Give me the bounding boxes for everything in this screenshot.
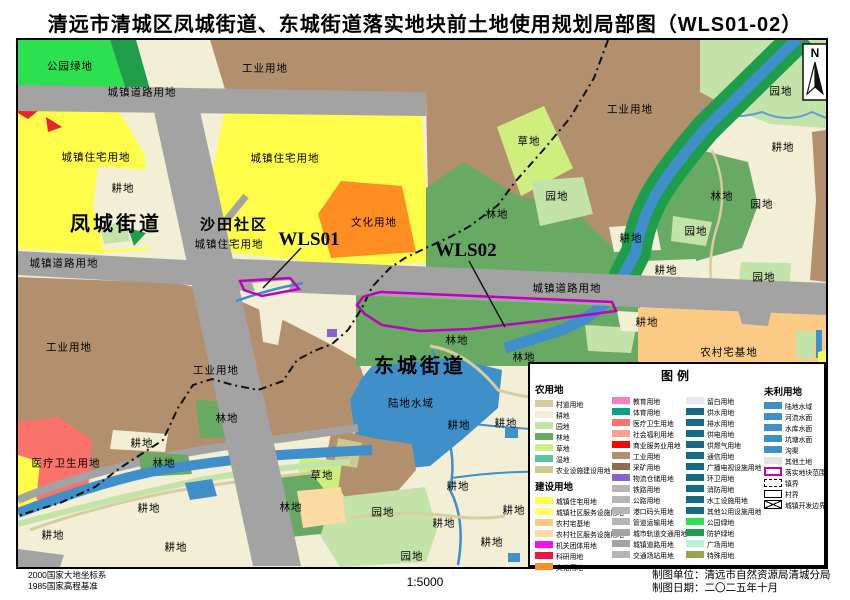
legend-item-label: 工业用地 bbox=[633, 451, 660, 461]
legend-swatch bbox=[612, 540, 630, 547]
legend-item: 村界 bbox=[764, 488, 826, 499]
legend-item-label: 广播电视设施用地 bbox=[707, 462, 761, 472]
legend-item: 物流仓储用地 bbox=[612, 472, 687, 483]
legend-swatch bbox=[686, 485, 704, 492]
legend-item-label: 供水用地 bbox=[707, 407, 734, 417]
legend-item-label: 水工设施用地 bbox=[707, 495, 748, 505]
legend-swatch bbox=[612, 518, 630, 525]
legend-item-label: 湿地 bbox=[556, 454, 570, 464]
legend-item: 城镇开发边界 bbox=[764, 499, 826, 510]
legend-item-label: 供电用地 bbox=[707, 429, 734, 439]
legend-item-label: 管道运输用地 bbox=[633, 517, 674, 527]
legend-item: 其他公用设施用地 bbox=[686, 505, 761, 516]
legend-swatch bbox=[764, 467, 782, 476]
legend-swatch bbox=[686, 474, 704, 481]
legend-item-label: 排水用地 bbox=[707, 418, 734, 428]
legend-item: 湿地 bbox=[535, 453, 624, 464]
legend-swatch bbox=[686, 463, 704, 470]
legend-item-label: 科研用地 bbox=[556, 551, 583, 561]
legend-item: 农业设施建设用地 bbox=[535, 464, 624, 475]
page-title: 清远市清城区凤城街道、东城街道落实地块前土地使用规划局部图（WLS01-02） bbox=[0, 8, 850, 37]
legend-item-label: 草地 bbox=[556, 443, 570, 453]
legend-item-label: 采矿用地 bbox=[633, 462, 660, 472]
legend-item-label: 通信用地 bbox=[707, 451, 734, 461]
legend-item-label: 村界 bbox=[785, 489, 799, 499]
legend-swatch bbox=[612, 463, 630, 470]
legend-item-label: 公园绿地 bbox=[707, 517, 734, 527]
legend-swatch bbox=[686, 441, 704, 448]
legend-item-label: 耕地 bbox=[556, 410, 570, 420]
legend-item-label: 广场用地 bbox=[707, 539, 734, 549]
legend-item: 林地 bbox=[535, 431, 624, 442]
legend-item: 文化用地 bbox=[535, 561, 624, 572]
legend-item: 工业用地 bbox=[612, 450, 687, 461]
legend-column-3: 留白用地 供水用地 排水用地 供电用地 bbox=[686, 395, 761, 560]
credit-line-1: 制图单位：清远市自然资源局清城分局 bbox=[652, 569, 831, 582]
legend-item: 草地 bbox=[535, 442, 624, 453]
legend-item-label: 沟渠 bbox=[785, 445, 799, 455]
legend-swatch bbox=[686, 397, 704, 404]
legend-swatch bbox=[612, 452, 630, 459]
legend-swatch bbox=[535, 433, 553, 440]
legend-item: 体育用地 bbox=[612, 406, 687, 417]
legend-item: 排水用地 bbox=[686, 417, 761, 428]
legend-item-label: 公路用地 bbox=[633, 495, 660, 505]
north-arrow-icon bbox=[803, 44, 826, 100]
legend-item: 公园绿地 bbox=[686, 516, 761, 527]
legend-item: 消防用地 bbox=[686, 483, 761, 494]
legend-item: 特殊用地 bbox=[686, 549, 761, 560]
legend-item: 广播电视设施用地 bbox=[686, 461, 761, 472]
legend-item: 城镇道路用地 bbox=[612, 538, 687, 549]
legend-swatch bbox=[764, 500, 782, 509]
legend: 图例 农用地 村道用地 耕地 园地 bbox=[528, 362, 826, 567]
legend-swatch bbox=[535, 466, 553, 473]
legend-swatch bbox=[686, 452, 704, 459]
legend-item-label: 城市轨道交通用地 bbox=[633, 528, 687, 538]
legend-item: 商业服务业用地 bbox=[612, 439, 687, 450]
legend-swatch bbox=[612, 551, 630, 558]
legend-swatch bbox=[535, 444, 553, 451]
legend-item-label: 园地 bbox=[556, 421, 570, 431]
legend-item: 医疗卫生用地 bbox=[612, 417, 687, 428]
legend-swatch bbox=[535, 422, 553, 429]
legend-item: 耕地 bbox=[535, 409, 624, 420]
legend-item: 广场用地 bbox=[686, 538, 761, 549]
legend-item-label: 教育用地 bbox=[633, 396, 660, 406]
legend-item-label: 机关团体用地 bbox=[556, 540, 597, 550]
legend-swatch bbox=[535, 519, 553, 526]
legend-swatch bbox=[612, 408, 630, 415]
legend-item: 供燃气用地 bbox=[686, 439, 761, 450]
legend-item-label: 农业设施建设用地 bbox=[556, 465, 610, 475]
legend-item: 供水用地 bbox=[686, 406, 761, 417]
legend-swatch bbox=[764, 446, 782, 453]
legend-item: 采矿用地 bbox=[612, 461, 687, 472]
legend-item-label: 留白用地 bbox=[707, 396, 734, 406]
legend-item-label: 河流水面 bbox=[785, 412, 812, 422]
legend-item-label: 落实地块范围 bbox=[785, 467, 826, 477]
legend-item-label: 防护绿地 bbox=[707, 528, 734, 538]
legend-swatch bbox=[612, 496, 630, 503]
legend-item: 园地 bbox=[535, 420, 624, 431]
legend-swatch bbox=[764, 424, 782, 431]
legend-item: 机关团体用地 bbox=[535, 539, 624, 550]
legend-item-label: 村道用地 bbox=[556, 399, 583, 409]
legend-swatch bbox=[686, 518, 704, 525]
legend-header-construction: 建设用地 bbox=[535, 479, 624, 493]
legend-swatch bbox=[535, 411, 553, 418]
legend-swatch bbox=[686, 419, 704, 426]
legend-item-label: 陆地水域 bbox=[785, 401, 812, 411]
legend-header-agricultural: 农用地 bbox=[535, 382, 624, 396]
legend-item-label: 镇界 bbox=[785, 478, 799, 488]
credit-line-2: 制图日期：二〇二五年十月 bbox=[652, 582, 831, 595]
legend-swatch bbox=[535, 497, 553, 504]
legend-item: 河流水面 bbox=[764, 411, 826, 422]
legend-item: 留白用地 bbox=[686, 395, 761, 406]
legend-item: 落实地块范围 bbox=[764, 466, 826, 477]
legend-item-label: 城镇住宅用地 bbox=[556, 496, 597, 506]
legend-item: 坑塘水面 bbox=[764, 433, 826, 444]
legend-item-label: 水库水面 bbox=[785, 423, 812, 433]
legend-item-label: 环卫用地 bbox=[707, 473, 734, 483]
legend-item: 农村社区服务设施用地 bbox=[535, 528, 624, 539]
legend-item: 港口码头用地 bbox=[612, 505, 687, 516]
legend-item: 科研用地 bbox=[535, 550, 624, 561]
legend-item: 管道运输用地 bbox=[612, 516, 687, 527]
legend-item: 公路用地 bbox=[612, 494, 687, 505]
legend-item: 水工设施用地 bbox=[686, 494, 761, 505]
legend-item-label: 其他土地 bbox=[785, 456, 812, 466]
legend-swatch bbox=[686, 551, 704, 558]
legend-swatch bbox=[612, 474, 630, 481]
legend-swatch bbox=[612, 529, 630, 536]
legend-swatch bbox=[686, 507, 704, 514]
legend-item: 城镇社区服务设施用地 bbox=[535, 506, 624, 517]
legend-item-label: 特殊用地 bbox=[707, 550, 734, 560]
legend-item: 村道用地 bbox=[535, 398, 624, 409]
legend-column-2: 教育用地 体育用地 医疗卫生用地 社会福利用地 bbox=[612, 395, 687, 560]
legend-item-label: 消防用地 bbox=[707, 484, 734, 494]
legend-item-label: 城镇道路用地 bbox=[633, 539, 674, 549]
legend-swatch bbox=[612, 419, 630, 426]
legend-swatch bbox=[612, 507, 630, 514]
credits: 制图单位：清远市自然资源局清城分局 制图日期：二〇二五年十月 bbox=[652, 569, 831, 595]
legend-swatch bbox=[764, 413, 782, 420]
legend-item-label: 商业服务业用地 bbox=[633, 440, 681, 450]
legend-item-label: 供燃气用地 bbox=[707, 440, 741, 450]
legend-swatch bbox=[686, 540, 704, 547]
legend-item: 陆地水域 bbox=[764, 400, 826, 411]
legend-item: 教育用地 bbox=[612, 395, 687, 406]
legend-item-label: 社会福利用地 bbox=[633, 429, 674, 439]
legend-swatch bbox=[535, 541, 553, 548]
legend-item-label: 物流仓储用地 bbox=[633, 473, 674, 483]
legend-item: 防护绿地 bbox=[686, 527, 761, 538]
legend-swatch bbox=[612, 397, 630, 404]
legend-item-label: 铁路用地 bbox=[633, 484, 660, 494]
legend-item-label: 其他公用设施用地 bbox=[707, 506, 761, 516]
legend-swatch bbox=[535, 563, 553, 570]
legend-item: 水库水面 bbox=[764, 422, 826, 433]
legend-item-label: 林地 bbox=[556, 432, 570, 442]
legend-item: 环卫用地 bbox=[686, 472, 761, 483]
legend-swatch bbox=[535, 530, 553, 537]
legend-item: 镇界 bbox=[764, 477, 826, 488]
legend-swatch bbox=[612, 430, 630, 437]
legend-item-label: 体育用地 bbox=[633, 407, 660, 417]
legend-swatch bbox=[535, 400, 553, 407]
legend-item-label: 农村宅基地 bbox=[556, 518, 590, 528]
legend-item: 通信用地 bbox=[686, 450, 761, 461]
legend-item-label: 港口码头用地 bbox=[633, 506, 674, 516]
legend-swatch bbox=[612, 485, 630, 492]
legend-item: 沟渠 bbox=[764, 444, 826, 455]
legend-swatch bbox=[764, 457, 782, 464]
legend-item-label: 城镇开发边界 bbox=[785, 500, 826, 510]
legend-swatch bbox=[764, 435, 782, 442]
legend-column-4: 未利用地 陆地水域 河流水面 水库水面 bbox=[764, 384, 826, 510]
legend-swatch bbox=[686, 430, 704, 437]
legend-swatch bbox=[535, 508, 553, 515]
legend-swatch bbox=[686, 496, 704, 503]
legend-swatch bbox=[764, 402, 782, 409]
legend-swatch bbox=[686, 408, 704, 415]
legend-item: 城镇住宅用地 bbox=[535, 495, 624, 506]
legend-swatch bbox=[535, 552, 553, 559]
legend-header-unused: 未利用地 bbox=[764, 384, 826, 398]
legend-item-label: 文化用地 bbox=[556, 562, 583, 572]
legend-swatch bbox=[686, 529, 704, 536]
legend-swatch bbox=[764, 490, 782, 498]
legend-item: 铁路用地 bbox=[612, 483, 687, 494]
legend-item: 其他土地 bbox=[764, 455, 826, 466]
legend-item: 供电用地 bbox=[686, 428, 761, 439]
legend-swatch bbox=[612, 441, 630, 448]
legend-item-label: 医疗卫生用地 bbox=[633, 418, 674, 428]
legend-item: 社会福利用地 bbox=[612, 428, 687, 439]
legend-item: 交通场站用地 bbox=[612, 549, 687, 560]
legend-column-1: 农用地 村道用地 耕地 园地 bbox=[535, 382, 624, 572]
legend-item: 农村宅基地 bbox=[535, 517, 624, 528]
legend-item: 城市轨道交通用地 bbox=[612, 527, 687, 538]
legend-swatch bbox=[764, 479, 782, 487]
legend-item-label: 交通场站用地 bbox=[633, 550, 674, 560]
legend-swatch bbox=[535, 455, 553, 462]
legend-item-label: 坑塘水面 bbox=[785, 434, 812, 444]
